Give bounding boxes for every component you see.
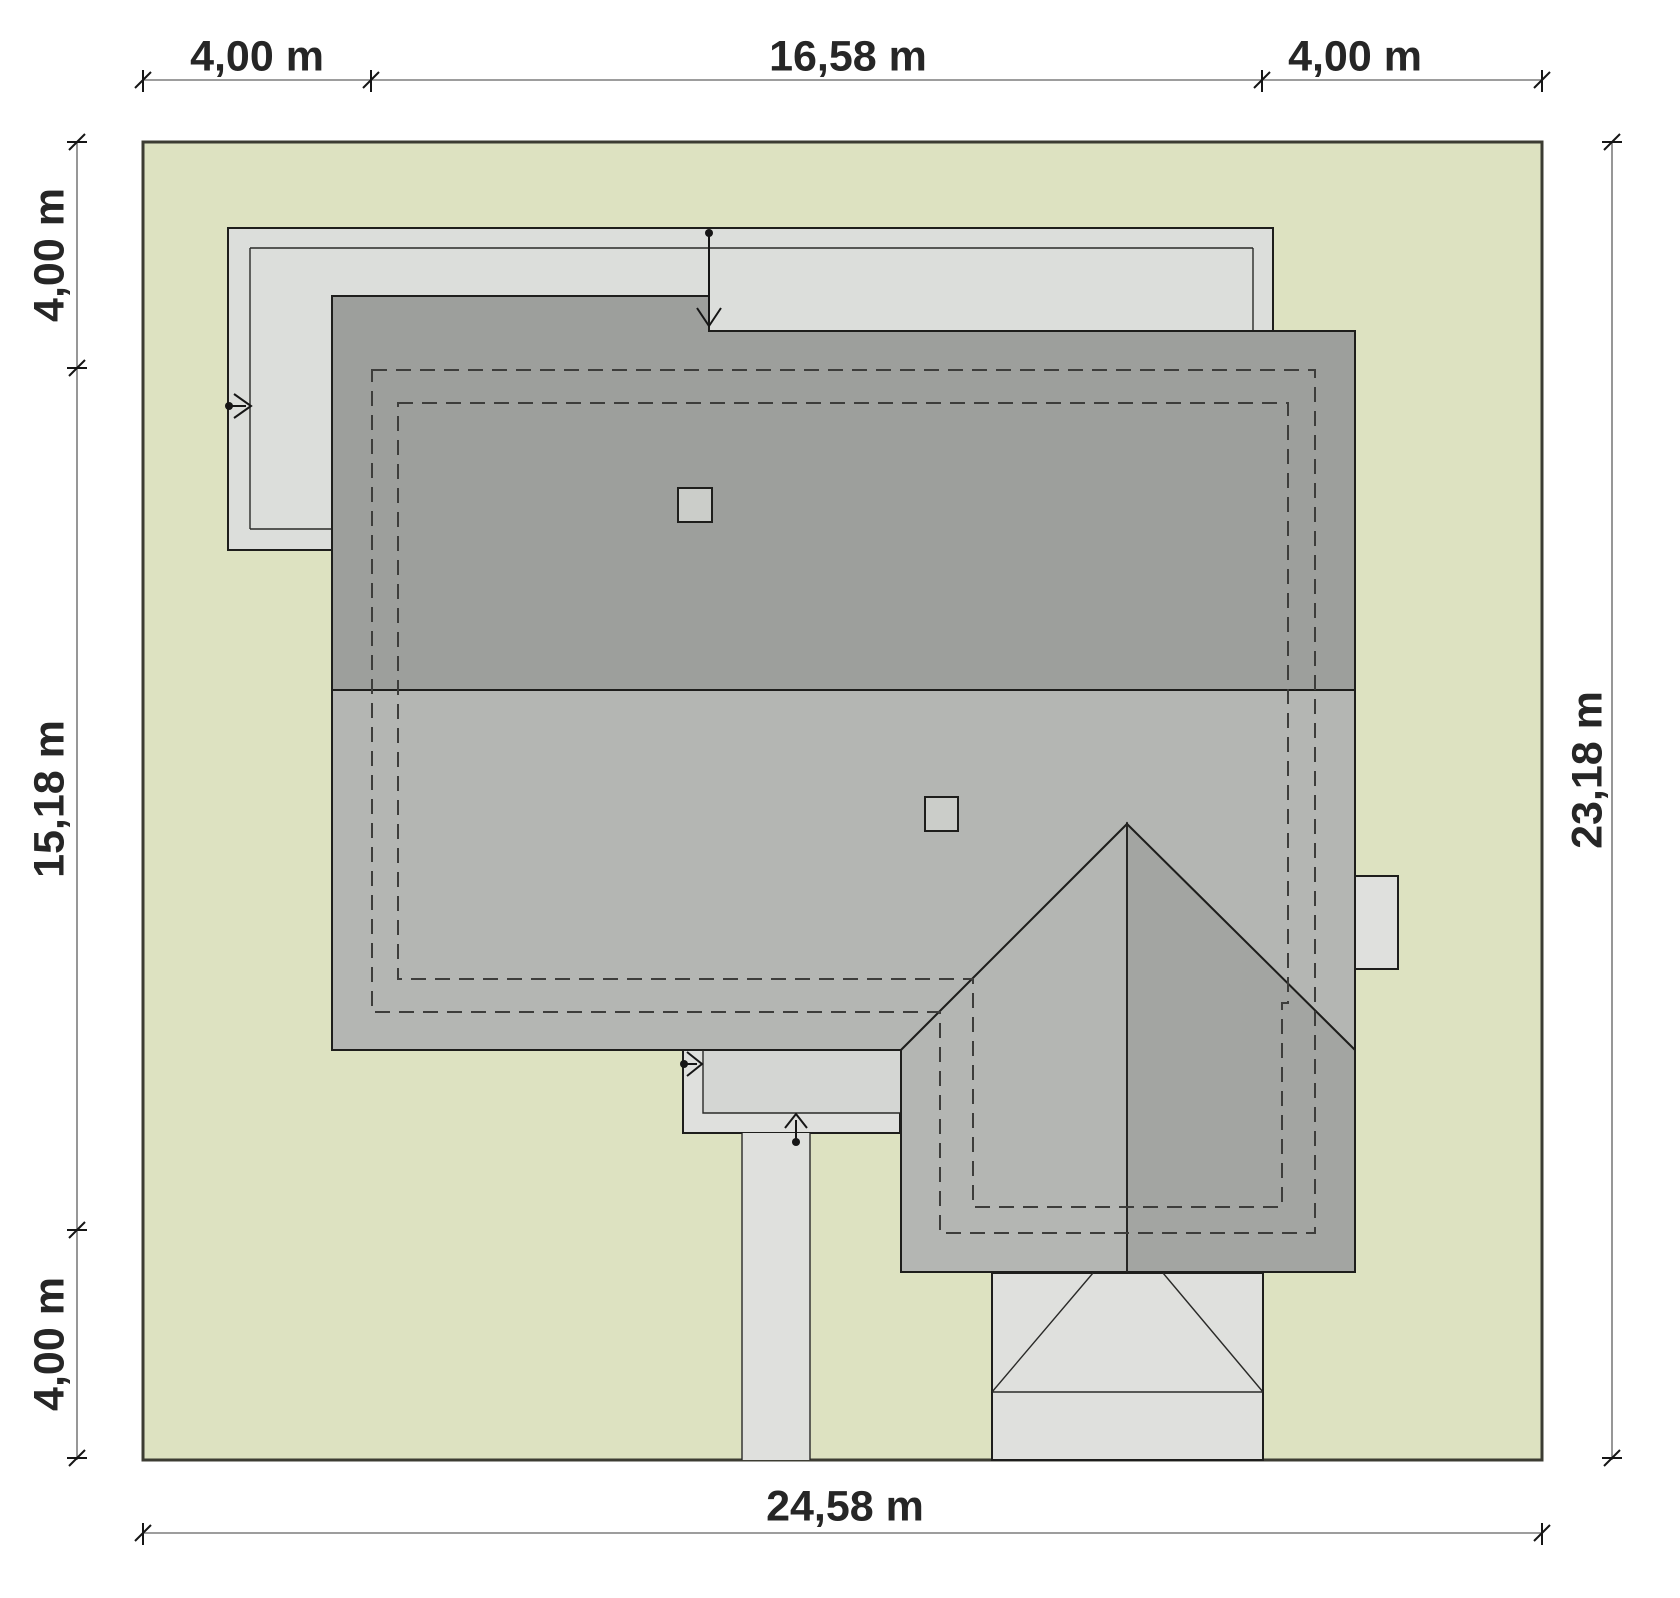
site-plan: 4,00 m 16,58 m 4,00 m 4,00 m 15,18 m 4,0… [0, 0, 1680, 1598]
dim-label-top-left: 4,00 m [190, 36, 324, 79]
dim-label-left-top: 4,00 m [29, 188, 72, 322]
dim-label-bottom: 24,58 m [766, 1486, 924, 1529]
dim-label-left-middle: 15,18 m [29, 720, 72, 878]
dim-label-right: 23,18 m [1567, 691, 1610, 849]
side-annex [1355, 876, 1398, 969]
dim-label-top-middle: 16,58 m [769, 36, 927, 79]
chimney-1 [678, 488, 712, 522]
dim-label-top-right: 4,00 m [1288, 36, 1422, 79]
dim-label-left-bottom: 4,00 m [29, 1277, 72, 1411]
driveway [742, 1133, 810, 1460]
terrace-paving-inner [703, 1051, 900, 1113]
garage-roof [992, 1273, 1263, 1460]
site-plan-drawing [0, 0, 1680, 1598]
chimney-2 [925, 797, 958, 831]
main-roof-dark-slope [332, 296, 1355, 690]
